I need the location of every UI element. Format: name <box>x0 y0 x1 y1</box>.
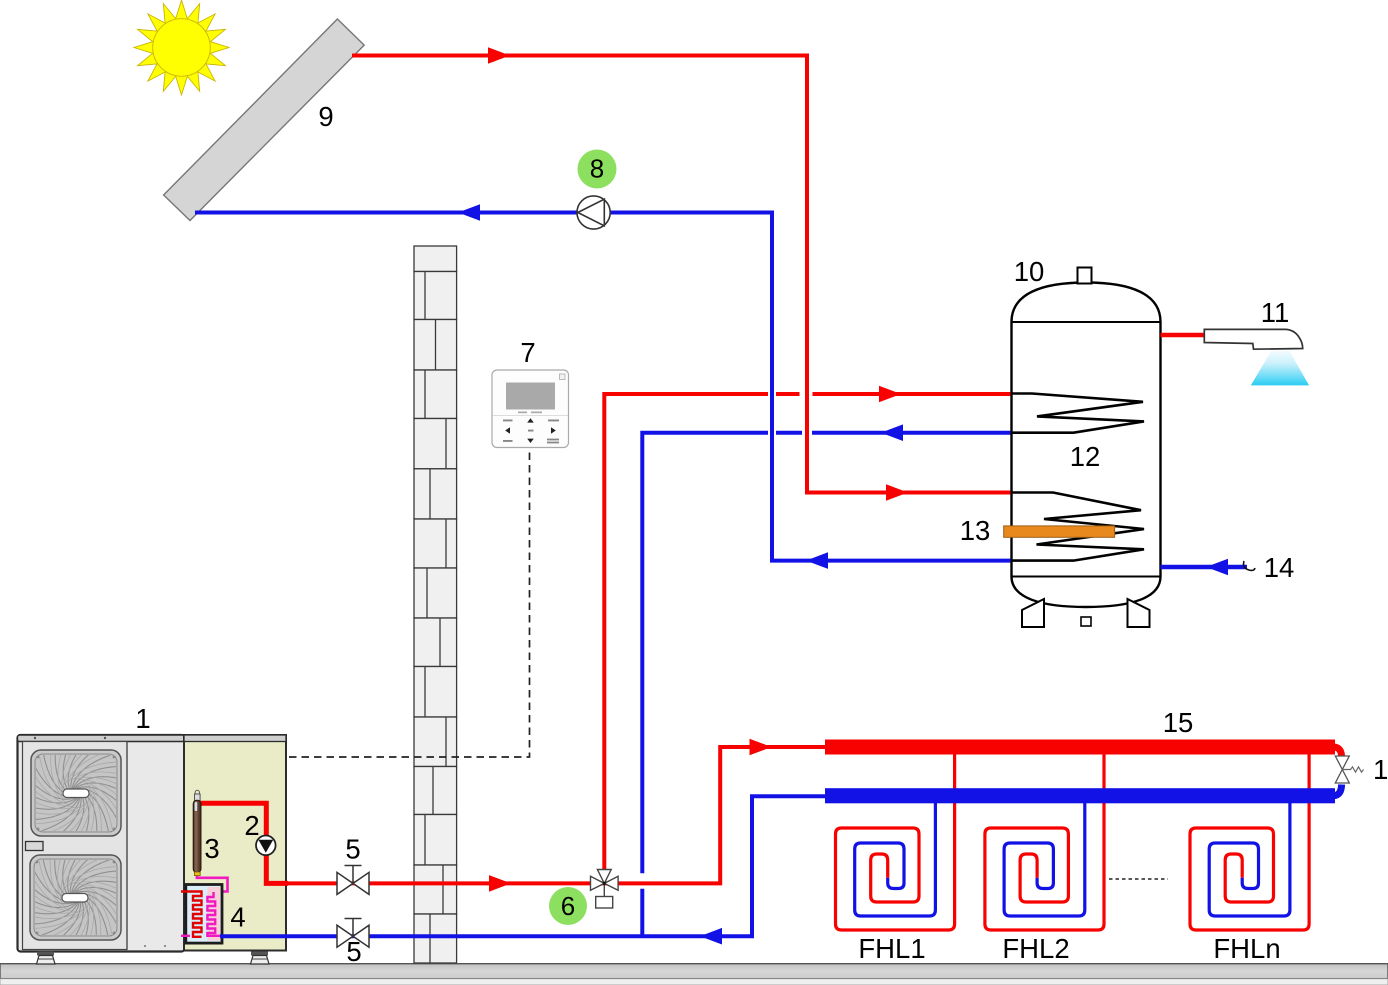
svg-text:7: 7 <box>520 337 535 368</box>
svg-text:9: 9 <box>318 101 333 132</box>
svg-text:3: 3 <box>204 833 219 864</box>
svg-text:13: 13 <box>960 515 991 546</box>
svg-text:4: 4 <box>230 902 245 933</box>
svg-text:5: 5 <box>346 936 361 967</box>
svg-text:16: 16 <box>1373 754 1388 785</box>
svg-text:15: 15 <box>1163 707 1194 738</box>
svg-text:10: 10 <box>1014 256 1045 287</box>
svg-text:FHL2: FHL2 <box>1002 933 1069 964</box>
svg-text:8: 8 <box>590 154 604 184</box>
svg-text:14: 14 <box>1264 552 1295 583</box>
svg-text:5: 5 <box>345 834 360 865</box>
svg-text:1: 1 <box>135 703 150 734</box>
svg-text:11: 11 <box>1261 297 1290 328</box>
svg-text:12: 12 <box>1070 441 1101 472</box>
svg-text:2: 2 <box>244 810 259 841</box>
svg-text:6: 6 <box>561 891 575 921</box>
svg-text:FHLn: FHLn <box>1213 933 1280 964</box>
svg-text:FHL1: FHL1 <box>858 933 925 964</box>
